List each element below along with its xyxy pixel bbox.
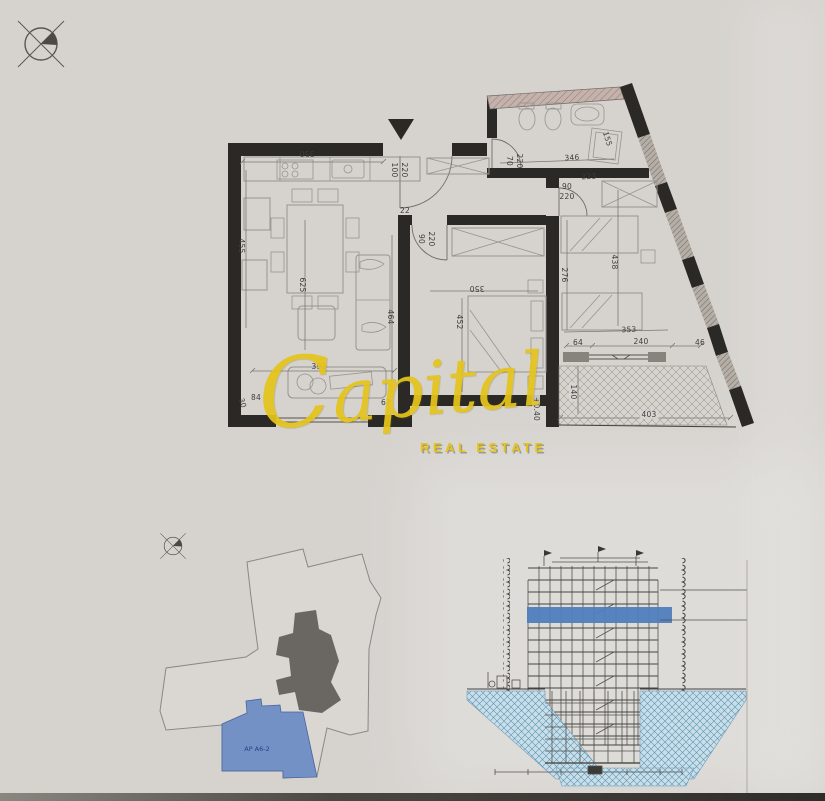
sink-icon xyxy=(332,160,364,178)
ground-hatch-bottom xyxy=(556,768,694,786)
section-blue-band xyxy=(527,607,672,623)
level-marks-left xyxy=(503,558,510,708)
ground-hatch-right xyxy=(640,691,746,779)
building-section xyxy=(467,546,747,793)
page-bottom-edge xyxy=(0,793,825,801)
wardrobe-hall xyxy=(427,158,489,174)
sofa xyxy=(356,255,390,350)
compass-north-icon xyxy=(18,21,64,67)
apartment-label: AP A6-2 xyxy=(244,745,270,753)
compass-north-icon xyxy=(160,533,185,558)
level-marks-right xyxy=(681,558,688,708)
single-bed-2 xyxy=(562,293,642,330)
dining-table xyxy=(271,189,359,309)
watermark-tagline: REAL ESTATE xyxy=(420,440,547,455)
bathroom-fixtures xyxy=(519,103,622,164)
scanned-floor-plan-sheet: AP A6-2 xyxy=(0,0,825,801)
site-plan: AP A6-2 xyxy=(160,533,381,778)
ground-hatch-left xyxy=(467,691,607,779)
entry-arrow-icon xyxy=(388,119,414,140)
kitchen-unit xyxy=(242,157,420,290)
hatched-wall xyxy=(487,87,624,109)
bedroom2-furniture xyxy=(561,181,657,330)
fridge-icon xyxy=(244,198,270,230)
single-bed-1 xyxy=(561,216,638,253)
balcony xyxy=(559,352,736,427)
roof-flag-icon xyxy=(544,546,644,566)
terrace-hatch xyxy=(559,366,727,425)
